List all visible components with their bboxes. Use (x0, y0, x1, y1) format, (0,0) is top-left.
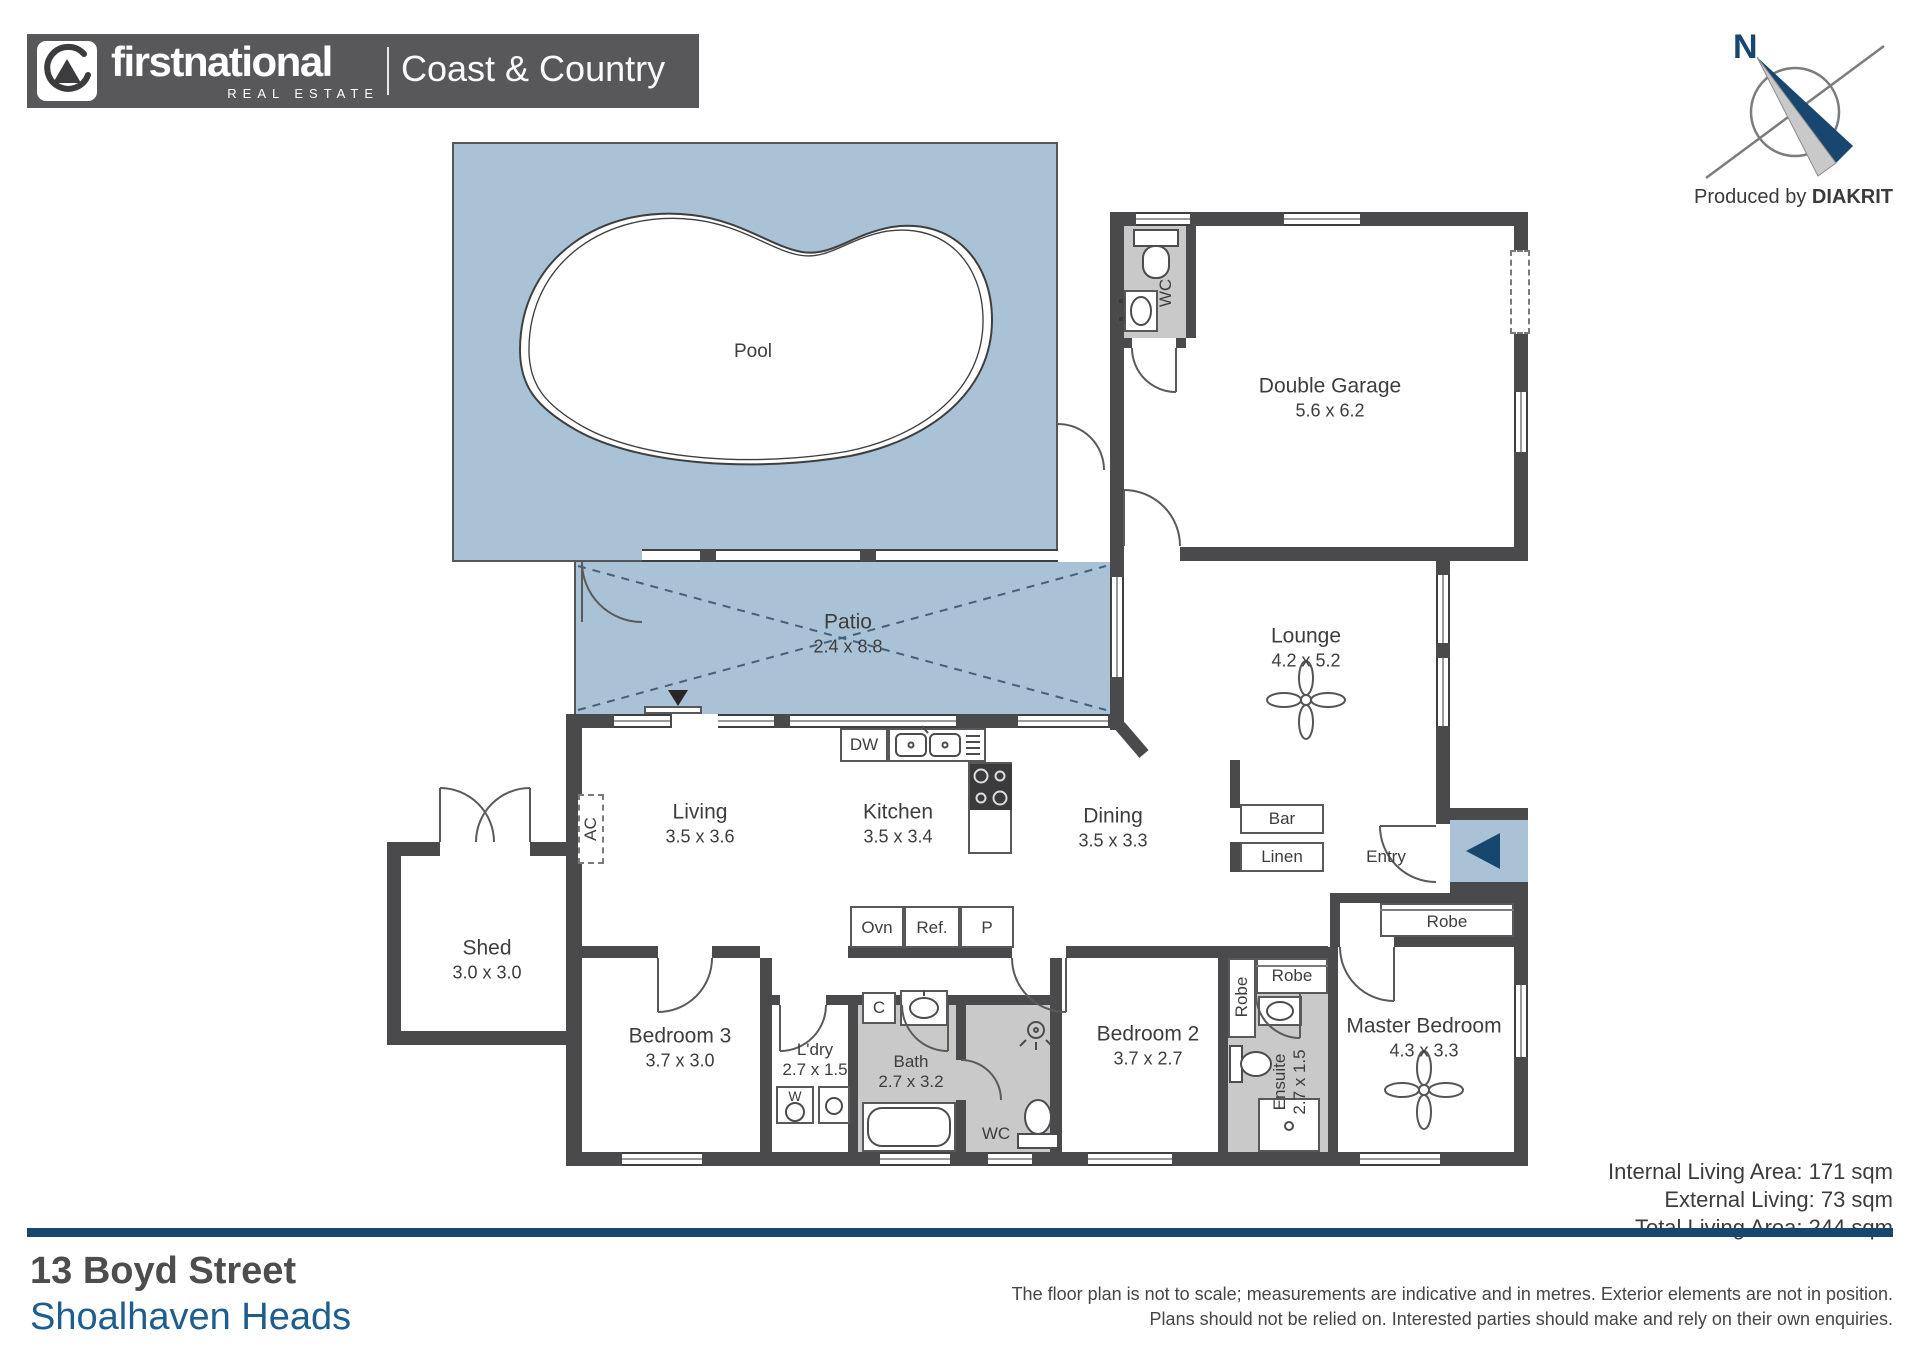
pool-label: Pool (734, 339, 772, 365)
wall (1108, 714, 1124, 728)
wc-label: WC (982, 1124, 1010, 1144)
lounge-label: Lounge 4.2 x 5.2 (1271, 624, 1341, 673)
cupboard-label: C (873, 998, 885, 1018)
wall (774, 714, 790, 728)
wall (1180, 547, 1528, 561)
bedroom3-name: Bedroom 3 (629, 1024, 732, 1050)
wall (760, 958, 772, 1152)
produced-by-text: Produced by (1694, 186, 1812, 208)
fence-post (700, 549, 716, 562)
patio-label: Patio 2.4 x 8.8 (813, 610, 882, 659)
wall (1514, 894, 1528, 985)
wall (1032, 1152, 1088, 1166)
living-label: Living 3.5 x 3.6 (665, 800, 734, 849)
pantry-label: P (981, 918, 992, 938)
ac-name: AC (581, 817, 601, 841)
wall (1230, 760, 1240, 808)
bedroom3-dims: 3.7 x 3.0 (629, 1050, 732, 1073)
shed-wall (530, 842, 580, 856)
window (1436, 575, 1450, 643)
kitchen-sink-unit (888, 728, 986, 762)
ensuite-vanity (1258, 996, 1302, 1026)
dining-dims: 3.5 x 3.3 (1078, 830, 1147, 853)
dw-name: DW (850, 735, 878, 755)
window (622, 1152, 702, 1166)
wall (1190, 212, 1284, 226)
brand-subtitle: REAL ESTATE (111, 86, 379, 101)
wall (956, 1005, 966, 1060)
dining-window (1018, 714, 1108, 728)
wall (1066, 946, 1328, 958)
disclaimer-line2: Plans should not be relied on. Intereste… (1012, 1307, 1893, 1332)
wall (566, 714, 614, 728)
internal-area: Internal Living Area: 171 sqm (1608, 1158, 1893, 1186)
living-name: Living (665, 800, 734, 826)
fence-post (860, 549, 876, 562)
window (1360, 1152, 1440, 1166)
window (1110, 577, 1124, 677)
linen-name: Linen (1261, 847, 1303, 867)
wall (1186, 226, 1196, 338)
patio-name: Patio (813, 610, 882, 636)
living-dims: 3.5 x 3.6 (665, 826, 734, 849)
wall (1436, 643, 1450, 658)
wall (670, 714, 672, 728)
bath-name: Bath (878, 1052, 943, 1072)
shed-wall (387, 1031, 573, 1045)
wall (1330, 893, 1514, 903)
ensuite-dims: 2.7 x 1.5 (1290, 1049, 1310, 1114)
lounge-dims: 4.2 x 5.2 (1271, 650, 1341, 673)
dining-name: Dining (1078, 804, 1147, 830)
wall (1176, 338, 1186, 348)
washer-name: W (788, 1086, 801, 1106)
ceiling-fan-icon (1385, 1051, 1463, 1129)
wall (1514, 212, 1528, 250)
master-label: Master Bedroom 4.3 x 3.3 (1346, 1014, 1501, 1063)
wall (1172, 1152, 1360, 1166)
garage-name: Double Garage (1259, 374, 1401, 400)
kitchen-counter (968, 762, 1012, 854)
garage-label: Double Garage 5.6 x 6.2 (1259, 374, 1401, 423)
wall (1124, 212, 1136, 226)
sliding-door-leaf (644, 706, 702, 714)
brand-office-name: Coast & Country (401, 48, 665, 90)
master-dims: 4.3 x 3.3 (1346, 1040, 1501, 1063)
garage-tilt-door (1510, 250, 1530, 334)
shed-label: Shed 3.0 x 3.0 (452, 936, 521, 985)
master-name: Master Bedroom (1346, 1014, 1501, 1040)
bathtub (862, 1102, 956, 1152)
window (988, 1152, 1032, 1166)
window (1088, 1152, 1172, 1166)
wall (1230, 842, 1240, 872)
pool-name: Pool (734, 339, 772, 365)
robe-name: Robe (1232, 977, 1252, 1018)
wall (566, 728, 582, 1152)
wall-stub (1120, 726, 1144, 754)
robe-name: Robe (1427, 912, 1468, 932)
window (1436, 658, 1450, 726)
entry-name: Entry (1366, 847, 1406, 867)
bedroom2-name: Bedroom 2 (1097, 1022, 1200, 1048)
garage-wc-name: WC (1156, 279, 1176, 307)
wall (950, 1152, 988, 1166)
entry-porch (1450, 820, 1528, 882)
wall (712, 946, 760, 958)
garage-wc-label: WC (1156, 279, 1176, 307)
laundry-label: L'dry 2.7 x 1.5 (782, 1040, 847, 1080)
suburb: Shoalhaven Heads (30, 1296, 351, 1339)
fridge-name: Ref. (916, 918, 947, 938)
wall (1436, 726, 1450, 824)
oven-label: Ovn (861, 918, 892, 938)
kitchen-dims: 3.5 x 3.4 (863, 826, 933, 849)
ceiling-fan-icon (1267, 661, 1345, 739)
logo-swirl-icon (37, 41, 97, 101)
wc-name: WC (982, 1124, 1010, 1144)
entry-label: Entry (1366, 847, 1406, 867)
window (1136, 212, 1190, 226)
wall (1110, 212, 1124, 577)
wall (772, 995, 780, 1005)
footer-divider (27, 1228, 1893, 1237)
bar-label: Bar (1269, 809, 1295, 829)
bath-label: Bath 2.7 x 3.2 (878, 1052, 943, 1092)
wall (1218, 958, 1228, 1152)
wall (1440, 1152, 1528, 1166)
wall (1394, 937, 1514, 947)
shed-name: Shed (452, 936, 521, 962)
wall (1330, 937, 1340, 947)
window (1514, 985, 1528, 1057)
brand-divider (387, 47, 389, 95)
washer-label: W (788, 1086, 801, 1106)
producer-name: DIAKRIT (1812, 186, 1893, 208)
bedroom2-label: Bedroom 2 3.7 x 2.7 (1097, 1022, 1200, 1071)
wall (1514, 452, 1528, 561)
disclaimer: The floor plan is not to scale; measurem… (1012, 1282, 1893, 1332)
wall (1328, 947, 1338, 1152)
lounge-name: Lounge (1271, 624, 1341, 650)
brand-banner: firstnational REAL ESTATE Coast & Countr… (27, 34, 699, 108)
bath-dims: 2.7 x 3.2 (878, 1072, 943, 1092)
wall (1436, 561, 1450, 575)
compass-north-label: N (1733, 28, 1758, 67)
wall (848, 1005, 858, 1152)
cupboard-name: C (873, 998, 885, 1018)
external-area: External Living: 73 sqm (1608, 1186, 1893, 1214)
brand-name: firstnational (111, 38, 332, 86)
wall (948, 995, 1050, 1005)
wall (1450, 808, 1528, 820)
ensuite-name: Ensuite (1270, 1049, 1290, 1114)
ensuite-floor-ext (1228, 1038, 1256, 1152)
robe-name: Robe (1272, 966, 1313, 986)
wall (1050, 958, 1062, 1152)
bar-name: Bar (1269, 809, 1295, 829)
wall (1124, 338, 1132, 348)
wall (1360, 212, 1528, 226)
window (718, 714, 774, 728)
wall (956, 714, 1018, 728)
disclaimer-line1: The floor plan is not to scale; measurem… (1012, 1282, 1893, 1307)
window (1284, 212, 1360, 226)
linen-label: Linen (1261, 847, 1303, 867)
wall (1514, 1057, 1528, 1152)
window (614, 714, 670, 728)
first-national-logo-icon (37, 41, 97, 101)
entry-direction-marker (668, 690, 688, 706)
garage-dims: 5.6 x 6.2 (1259, 400, 1401, 423)
bedroom2-dims: 3.7 x 2.7 (1097, 1048, 1200, 1071)
shed-dims: 3.0 x 3.0 (452, 962, 521, 985)
window (880, 1152, 950, 1166)
kitchen-window (790, 714, 956, 728)
laundry-name: L'dry (782, 1040, 847, 1060)
bed2-robe-top-label: Robe (1272, 966, 1313, 986)
bath-vanity (900, 990, 948, 1026)
laundry-dims: 2.7 x 1.5 (782, 1060, 847, 1080)
floorplan-page: firstnational REAL ESTATE Coast & Countr… (0, 0, 1920, 1357)
wall (1514, 334, 1528, 392)
patio-dims: 2.4 x 8.8 (813, 636, 882, 659)
window (1514, 392, 1528, 452)
dining-label: Dining 3.5 x 3.3 (1078, 804, 1147, 853)
kitchen-name: Kitchen (863, 800, 933, 826)
wall (826, 995, 862, 1005)
laundry-tub-box (818, 1086, 850, 1124)
kitchen-label: Kitchen 3.5 x 3.4 (863, 800, 933, 849)
wall (566, 1152, 622, 1166)
dw-label: DW (850, 735, 878, 755)
ensuite-label: Ensuite 2.7 x 1.5 (1270, 1049, 1310, 1114)
shed-wall (387, 842, 401, 1045)
pantry-name: P (981, 918, 992, 938)
fridge-label: Ref. (916, 918, 947, 938)
oven-name: Ovn (861, 918, 892, 938)
produced-by-credit: Produced by DIAKRIT (1694, 186, 1893, 209)
bedroom3-label: Bedroom 3 3.7 x 3.0 (629, 1024, 732, 1073)
street-address: 13 Boyd Street (30, 1250, 296, 1293)
master-robe-label: Robe (1427, 912, 1468, 932)
wall (702, 1152, 880, 1166)
wall (956, 1100, 966, 1152)
ac-label: AC (581, 817, 601, 841)
bed2-robe-side-label: Robe (1232, 977, 1252, 1018)
wall (582, 946, 658, 958)
garage-wc-basin (1124, 290, 1158, 332)
